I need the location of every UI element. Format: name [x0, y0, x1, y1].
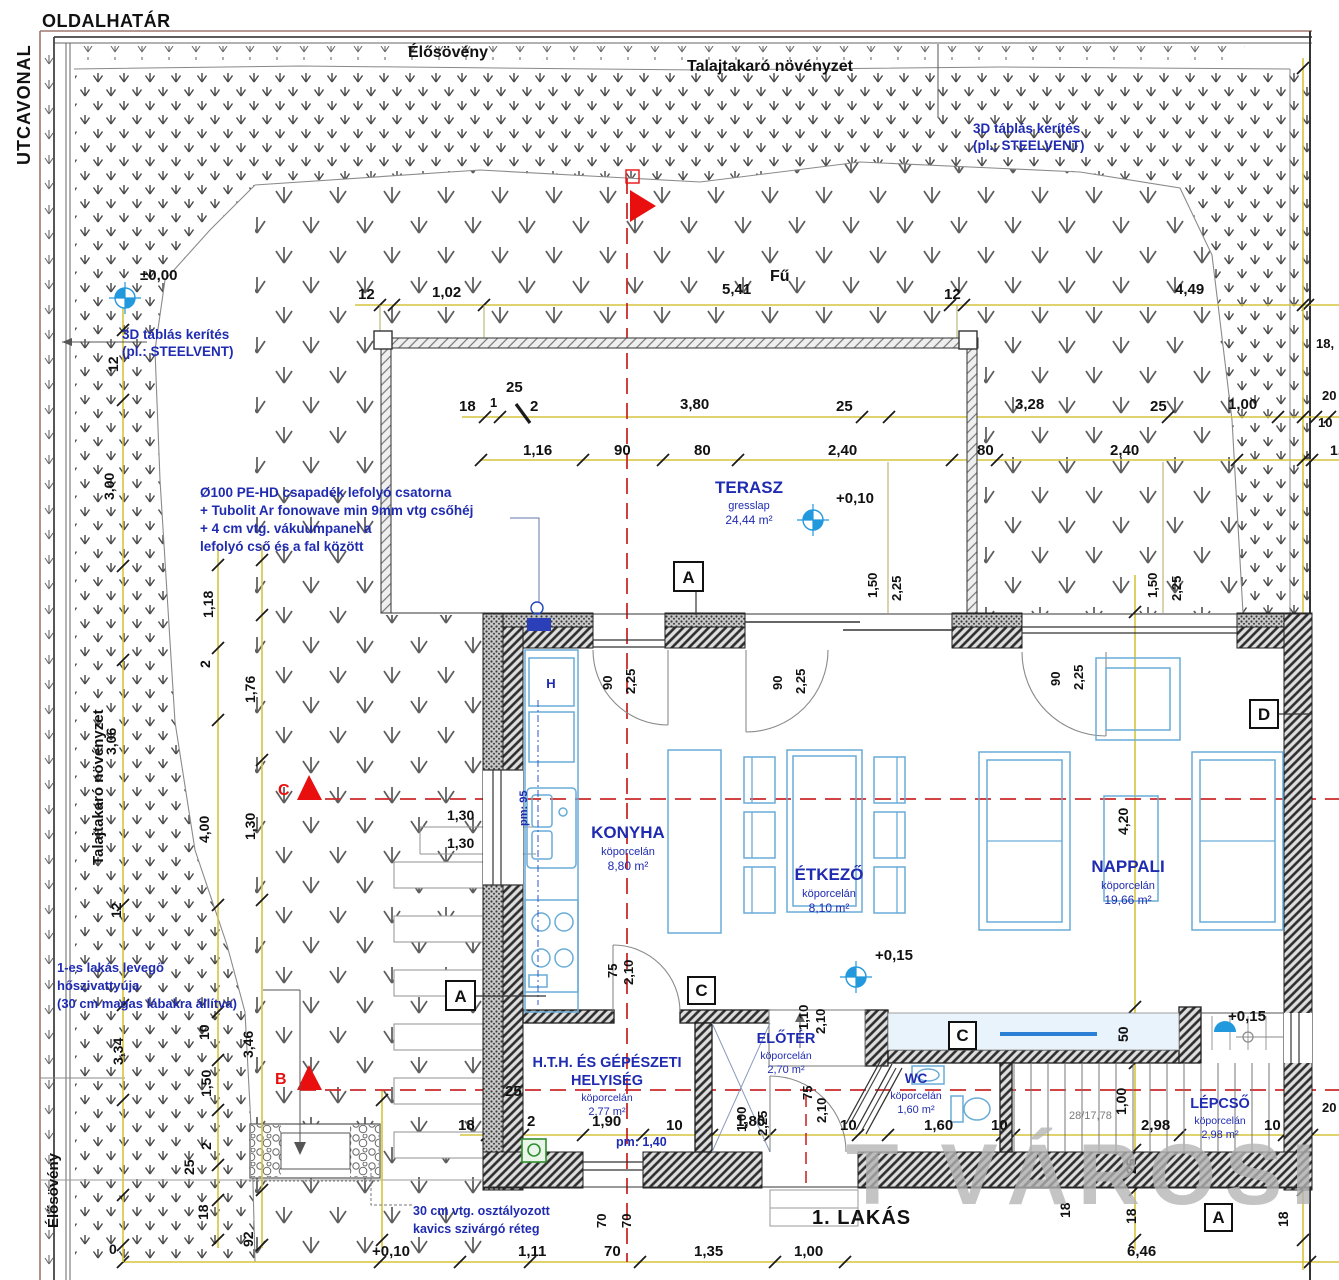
- svg-text:75: 75: [605, 964, 620, 978]
- svg-text:1,00: 1,00: [1113, 1088, 1129, 1115]
- svg-text:T VÁROSI: T VÁROSI: [846, 1127, 1324, 1223]
- svg-text:3,80: 3,80: [680, 396, 709, 413]
- svg-text:3D táblás kerítés: 3D táblás kerítés: [122, 327, 229, 342]
- svg-text:3D táblás kerítés: 3D táblás kerítés: [973, 121, 1080, 136]
- svg-text:20: 20: [1322, 388, 1336, 403]
- svg-text:C: C: [695, 981, 707, 1000]
- svg-text:3,00: 3,00: [101, 473, 117, 500]
- svg-text:HELYISÉG: HELYISÉG: [571, 1072, 643, 1089]
- svg-text:köporcelán: köporcelán: [890, 1090, 942, 1102]
- svg-text:1,00: 1,00: [734, 1107, 749, 1132]
- svg-text:D: D: [1258, 705, 1270, 724]
- svg-text:28/17,78: 28/17,78: [1069, 1110, 1112, 1122]
- svg-text:4,00: 4,00: [196, 816, 212, 843]
- svg-text:1,60 m²: 1,60 m²: [897, 1104, 935, 1116]
- svg-text:2,40: 2,40: [1110, 442, 1139, 459]
- svg-text:18: 18: [458, 1117, 475, 1134]
- svg-text:+0,10: +0,10: [372, 1243, 410, 1260]
- svg-text:25: 25: [181, 1159, 197, 1175]
- svg-text:80: 80: [694, 442, 711, 459]
- svg-text:3,46: 3,46: [240, 1031, 256, 1058]
- svg-text:2,10: 2,10: [813, 1009, 828, 1034]
- svg-text:A: A: [682, 568, 694, 587]
- svg-text:2,25: 2,25: [1071, 665, 1086, 690]
- svg-text:2,70 m²: 2,70 m²: [767, 1064, 805, 1076]
- svg-text:1,30: 1,30: [242, 813, 258, 840]
- svg-text:1,00: 1,00: [1228, 396, 1257, 413]
- svg-text:12: 12: [105, 356, 121, 372]
- svg-text:8,10 m²: 8,10 m²: [809, 901, 850, 915]
- svg-text:köporcelán: köporcelán: [581, 1092, 633, 1104]
- svg-text:WC: WC: [905, 1071, 928, 1086]
- svg-text:Talajtakaró növényzet: Talajtakaró növényzet: [687, 58, 854, 75]
- svg-text:UTCAVONAL: UTCAVONAL: [14, 44, 34, 165]
- svg-text:24,44 m²: 24,44 m²: [725, 513, 772, 527]
- svg-text:H: H: [546, 676, 555, 691]
- svg-text:2: 2: [197, 660, 213, 668]
- svg-text:25: 25: [506, 379, 523, 396]
- svg-text:+0,10: +0,10: [836, 490, 874, 507]
- svg-text:1: 1: [490, 395, 497, 410]
- svg-text:H.T.H. ÉS GÉPÉSZETI: H.T.H. ÉS GÉPÉSZETI: [532, 1054, 681, 1071]
- svg-text:KONYHA: KONYHA: [591, 823, 665, 842]
- svg-text:köporcelán: köporcelán: [1194, 1115, 1246, 1127]
- svg-text:1-es lakás levegő: 1-es lakás levegő: [57, 960, 164, 975]
- svg-text:1,18: 1,18: [200, 591, 216, 618]
- svg-text:2: 2: [530, 398, 538, 415]
- svg-text:1,50: 1,50: [198, 1070, 214, 1097]
- svg-text:1,30: 1,30: [447, 807, 474, 823]
- svg-text:1,50: 1,50: [865, 573, 880, 598]
- svg-text:OLDALHATÁR: OLDALHATÁR: [42, 10, 171, 31]
- svg-text:köporcelán: köporcelán: [601, 846, 655, 858]
- svg-text:10: 10: [666, 1117, 683, 1134]
- svg-text:ÉTKEZŐ: ÉTKEZŐ: [795, 865, 864, 884]
- svg-text:8,80 m²: 8,80 m²: [608, 859, 649, 873]
- svg-text:1,11: 1,11: [518, 1243, 546, 1260]
- svg-text:18: 18: [195, 1204, 211, 1220]
- svg-text:3,06: 3,06: [103, 728, 119, 755]
- svg-text:20: 20: [1322, 1100, 1336, 1115]
- svg-text:gresslap: gresslap: [728, 500, 770, 512]
- svg-text:köporcelán: köporcelán: [802, 888, 856, 900]
- svg-text:2,25: 2,25: [889, 576, 904, 601]
- svg-text:ELŐTÉR: ELŐTÉR: [757, 1029, 816, 1047]
- svg-text:Ø100 PE-HD csapadék lefolyó cs: Ø100 PE-HD csapadék lefolyó csatorna: [200, 485, 452, 500]
- svg-text:2,40: 2,40: [828, 442, 857, 459]
- svg-text:LÉPCSŐ: LÉPCSŐ: [1190, 1094, 1250, 1112]
- svg-text:1,: 1,: [1330, 442, 1339, 458]
- svg-text:1,76: 1,76: [242, 676, 258, 703]
- svg-text:4,49: 4,49: [1175, 281, 1204, 298]
- svg-text:90: 90: [600, 676, 615, 690]
- svg-text:80: 80: [977, 442, 994, 459]
- svg-text:5,41: 5,41: [722, 281, 751, 298]
- svg-text:2: 2: [198, 1142, 214, 1150]
- svg-text:12: 12: [358, 286, 375, 303]
- svg-text:75: 75: [800, 1086, 815, 1100]
- svg-text:1,30: 1,30: [447, 835, 474, 851]
- svg-text:pm: 1,40: pm: 1,40: [616, 1135, 667, 1149]
- svg-text:Fű: Fű: [770, 268, 790, 285]
- svg-text:1,35: 1,35: [694, 1243, 723, 1260]
- svg-text:2,10: 2,10: [621, 960, 636, 985]
- svg-text:köporcelán: köporcelán: [760, 1050, 812, 1062]
- svg-text:±0,00: ±0,00: [140, 267, 177, 284]
- svg-text:1,90: 1,90: [592, 1113, 621, 1130]
- svg-text:92: 92: [240, 1231, 256, 1247]
- svg-text:0: 0: [109, 1241, 117, 1257]
- svg-text:90: 90: [614, 442, 631, 459]
- svg-text:TERASZ: TERASZ: [715, 478, 783, 497]
- svg-text:1,10: 1,10: [796, 1005, 811, 1030]
- svg-text:C: C: [956, 1026, 968, 1045]
- svg-text:lefolyó cső és a fal között: lefolyó cső és a fal között: [200, 539, 364, 554]
- svg-text:70: 70: [594, 1214, 609, 1228]
- svg-text:NAPPALI: NAPPALI: [1091, 857, 1164, 876]
- svg-text:1,02: 1,02: [432, 284, 461, 301]
- svg-text:50: 50: [1115, 1026, 1131, 1042]
- svg-text:6,46: 6,46: [1127, 1243, 1156, 1260]
- svg-text:(pl.: STEELVENT): (pl.: STEELVENT): [973, 138, 1085, 153]
- svg-text:+0,15: +0,15: [1228, 1008, 1266, 1025]
- svg-text:10: 10: [1318, 415, 1332, 430]
- svg-text:pm: 95: pm: 95: [518, 791, 530, 826]
- svg-text:B: B: [275, 1071, 287, 1088]
- svg-text:+ 4 cm vtg. vákuumpanel a: + 4 cm vtg. vákuumpanel a: [200, 521, 372, 536]
- svg-text:(30 cm magas lábakra állítva): (30 cm magas lábakra állítva): [57, 996, 237, 1011]
- svg-text:25: 25: [505, 1083, 522, 1100]
- svg-text:30 cm vtg. osztályozott: 30 cm vtg. osztályozott: [413, 1204, 551, 1218]
- svg-text:90: 90: [1048, 672, 1063, 686]
- svg-text:1,00: 1,00: [794, 1243, 823, 1260]
- svg-text:Élősövény: Élősövény: [408, 42, 488, 61]
- svg-text:10: 10: [196, 1024, 212, 1040]
- svg-text:1,16: 1,16: [523, 442, 552, 459]
- svg-text:18: 18: [459, 398, 476, 415]
- svg-text:2,25: 2,25: [1169, 576, 1184, 601]
- svg-text:+ Tubolit Ar fonowave min 9mm: + Tubolit Ar fonowave min 9mm vtg csőhéj: [200, 503, 473, 518]
- svg-text:(pl.: STEELVENT): (pl.: STEELVENT): [122, 344, 234, 359]
- svg-text:70: 70: [604, 1243, 621, 1260]
- svg-text:2,10: 2,10: [814, 1098, 829, 1123]
- svg-text:90: 90: [770, 676, 785, 690]
- svg-text:2: 2: [527, 1113, 535, 1130]
- svg-text:+0,15: +0,15: [875, 947, 913, 964]
- svg-text:12: 12: [944, 286, 961, 303]
- svg-text:C: C: [278, 782, 290, 799]
- svg-text:2,25: 2,25: [793, 669, 808, 694]
- svg-text:19,66 m²: 19,66 m²: [1104, 893, 1151, 907]
- svg-text:1,50: 1,50: [1145, 573, 1160, 598]
- svg-text:2,25: 2,25: [755, 1111, 770, 1136]
- svg-text:hőszivattyúja: hőszivattyúja: [57, 978, 140, 993]
- svg-text:25: 25: [836, 398, 853, 415]
- svg-text:4,20: 4,20: [1115, 808, 1131, 835]
- svg-text:Élősövény: Élősövény: [45, 1152, 62, 1228]
- svg-text:2,25: 2,25: [623, 669, 638, 694]
- svg-text:A: A: [454, 987, 466, 1006]
- svg-text:18,: 18,: [1316, 336, 1334, 351]
- svg-text:kavics szivárgó réteg: kavics szivárgó réteg: [413, 1222, 539, 1236]
- svg-text:70: 70: [619, 1214, 634, 1228]
- svg-text:3,28: 3,28: [1015, 396, 1044, 413]
- svg-text:köporcelán: köporcelán: [1101, 880, 1155, 892]
- svg-text:3,34: 3,34: [110, 1038, 126, 1065]
- svg-text:12: 12: [108, 902, 124, 918]
- svg-text:25: 25: [1150, 398, 1167, 415]
